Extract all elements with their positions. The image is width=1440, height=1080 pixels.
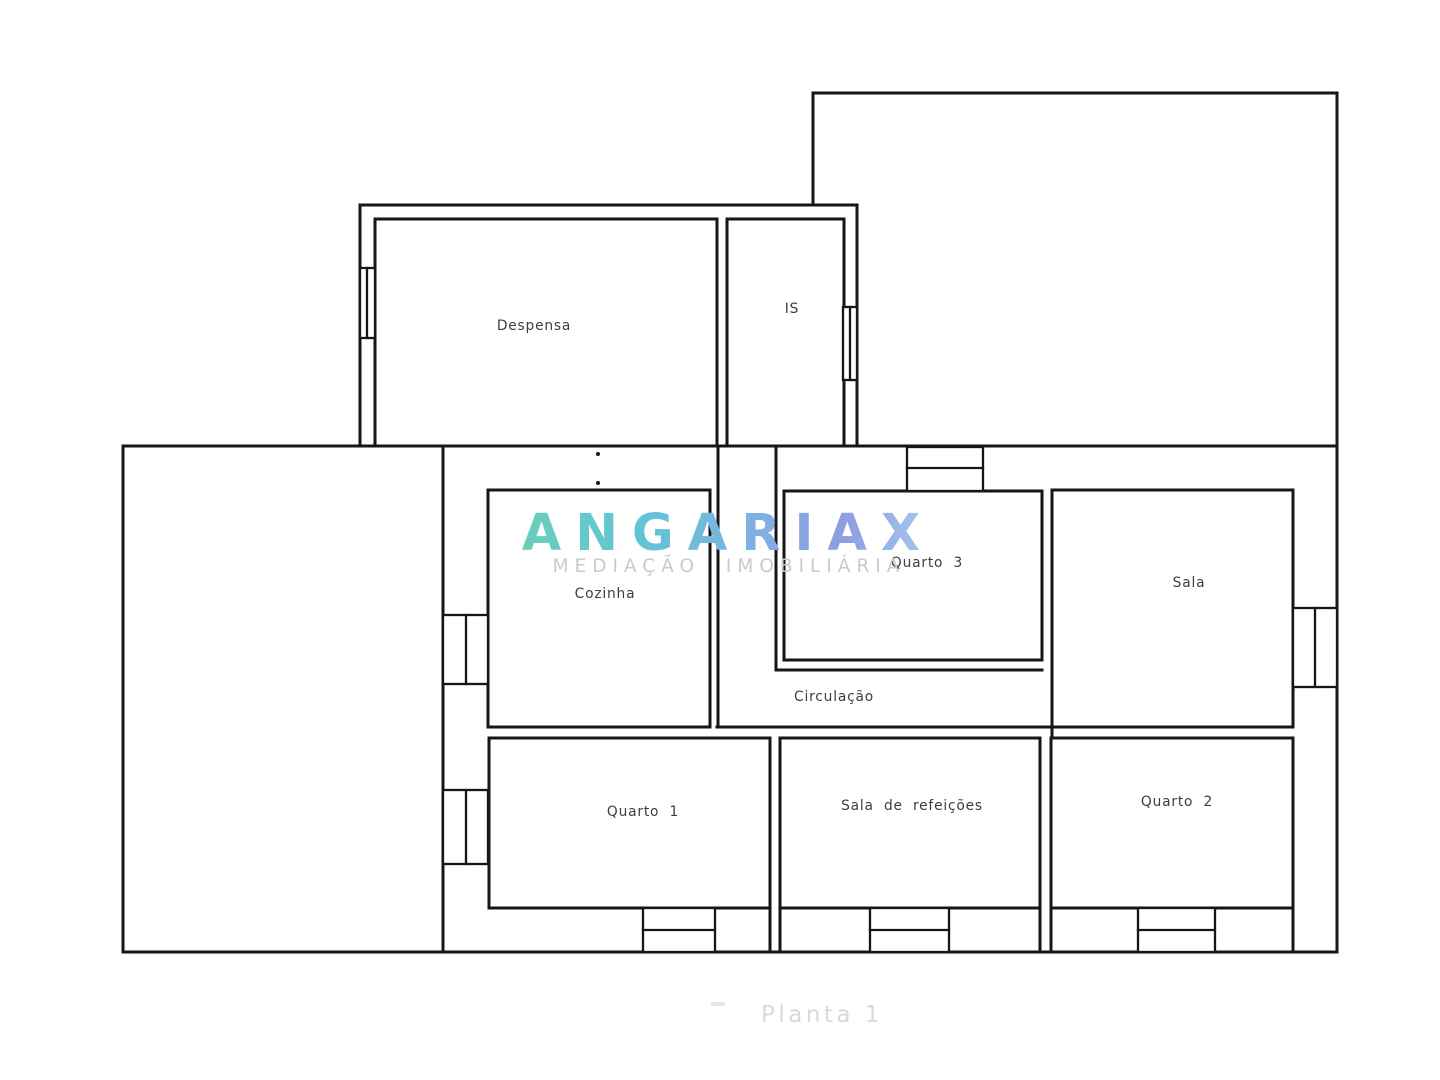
caption-faint-dash — [711, 1002, 725, 1006]
room-label-is: IS — [785, 301, 799, 317]
room-label-despensa: Despensa — [497, 318, 571, 334]
room-label-sala: Sala — [1173, 575, 1206, 591]
room-outline-sala — [1052, 490, 1293, 727]
window-sala-east — [1293, 608, 1337, 687]
wall-outline-left-annex — [123, 446, 443, 952]
caption-title: Planta 1 — [761, 1002, 883, 1028]
window-quarto-3-north — [907, 447, 983, 491]
window-quarto-1-south — [643, 908, 715, 952]
wall-outline-top-right-annex — [813, 93, 1337, 446]
room-outline-quarto-1 — [489, 738, 770, 908]
door-dot-bottom — [596, 481, 600, 485]
door-marker-dots — [596, 452, 600, 485]
watermark-brand: ANGARIAX — [522, 504, 935, 563]
watermark-logo: ANGARIAX MEDIAÇÃO IMOBILIÁRIA — [522, 504, 935, 577]
window-quarto-1-west — [443, 790, 488, 864]
room-outline-is — [727, 219, 844, 446]
window-is-east — [843, 307, 857, 380]
window-cozinha-west — [443, 615, 488, 684]
door-dot-top — [596, 452, 600, 456]
floorplan-page: Despensa IS Cozinha Quarto 3 Sala Circul… — [0, 0, 1440, 1080]
room-label-sala-de-refeicoes: Sala de refeições — [841, 798, 983, 814]
room-label-cozinha: Cozinha — [575, 586, 636, 602]
floorplan-svg: Despensa IS Cozinha Quarto 3 Sala Circul… — [0, 0, 1440, 1080]
room-label-quarto-1: Quarto 1 — [607, 804, 679, 820]
room-outline-quarto-2 — [1051, 738, 1293, 908]
room-label-circulacao: Circulação — [794, 689, 874, 705]
window-quarto-2-south — [1138, 908, 1215, 952]
room-outline-sala-de-refeicoes — [780, 738, 1040, 908]
window-sala-de-refeicoes-south — [870, 908, 949, 952]
watermark-tagline: MEDIAÇÃO IMOBILIÁRIA — [553, 555, 906, 577]
wall-outline-despensa-block — [360, 205, 857, 446]
window-despensa-west — [360, 268, 375, 338]
room-label-quarto-2: Quarto 2 — [1141, 794, 1213, 810]
windows-group — [360, 268, 1337, 952]
